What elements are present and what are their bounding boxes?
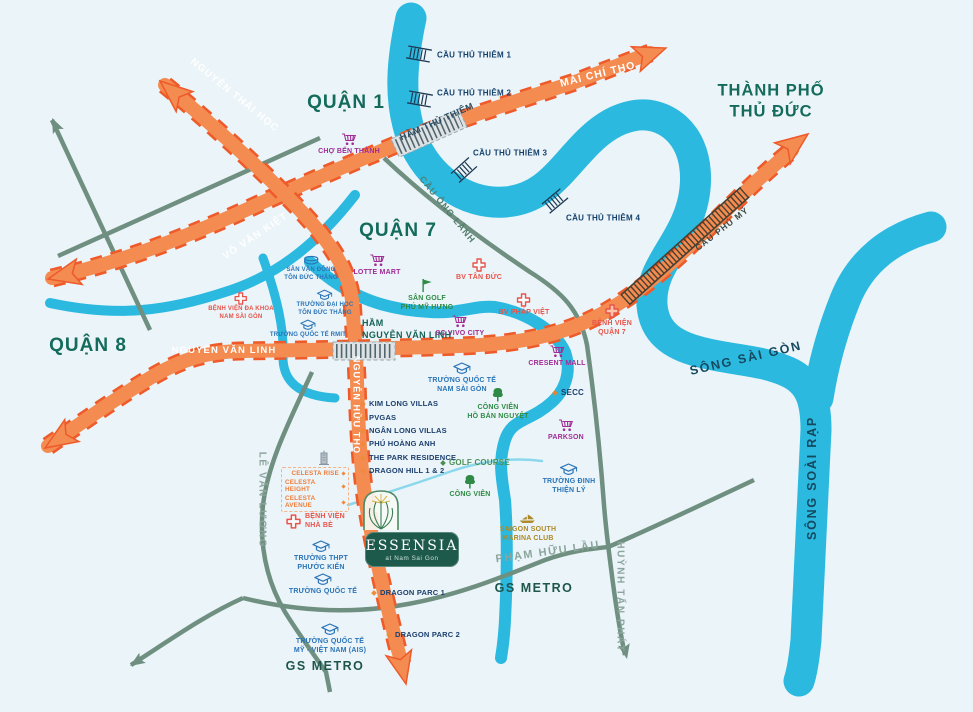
poi-label: SAIGON SOUTH MARINA CLUB <box>500 525 556 543</box>
essensia-location-map: QUẬN 1 QUẬN 7 QUẬN 8 THÀNH PHỐ THỦ ĐỨC G… <box>0 0 973 712</box>
district-quan-8: QUẬN 8 <box>49 334 127 358</box>
poi-cresent-mall: CRESENT MALL <box>528 344 585 368</box>
villa-item-kim-long: KIM LONG VILLAS <box>361 399 438 408</box>
poi-bv-phap-viet: BV PHÁP VIỆT <box>499 293 550 317</box>
road-southwest-spur <box>131 598 243 665</box>
poi-label: TRƯỜNG ĐẠI HỌC TÔN ĐỨC THẮNG <box>297 302 354 318</box>
bridge-label-thu-thiem-1: CẦU THỦ THIÊM 1 <box>437 51 511 60</box>
diamond-bullet <box>360 441 366 447</box>
medical-cross-icon <box>286 514 301 529</box>
diamond-bullet <box>552 390 558 396</box>
tree-icon <box>464 474 477 489</box>
cart-icon <box>452 314 468 328</box>
poi-truong-quoc-te: TRƯỜNG QUỐC TẾ <box>289 573 357 596</box>
poi-label: SÂN GOLF PHÚ MỸ HƯNG <box>401 294 454 312</box>
tree-icon <box>491 387 504 402</box>
golf-flag-icon <box>421 278 433 293</box>
bridge-label-thu-thiem-2: CẦU THỦ THIÊM 2 <box>437 89 511 98</box>
poi-label: TRƯỜNG QUỐC TẾ <box>289 587 357 596</box>
essensia-logo-name: ESSENSIA <box>366 538 459 554</box>
river-label-soai-rap: SÔNG SOÀI RẠP <box>805 416 821 540</box>
poi-label: DRAGON PARC 2 <box>395 630 460 639</box>
road-label-huynh-tan-phat: HUỲNH TẤN PHÁT <box>613 541 626 652</box>
poi-label: PARKSON <box>548 433 584 442</box>
poi-label: DRAGON PARC 1 <box>380 588 445 597</box>
poi-label: SÂN VẬN ĐỘNG TÔN ĐỨC THẮNG <box>284 267 338 283</box>
poi-label: BỆNH VIỆN NHÀ BÈ <box>305 512 345 530</box>
villa-item-ngan-long: NGÂN LONG VILLAS <box>361 426 447 435</box>
poi-label: CHỢ BẾN THÀNH <box>318 147 380 156</box>
poi-truong-thpt-phuoc-kien: TRƯỜNG THPT PHƯỚC KIỂN <box>294 540 348 572</box>
poi-saigon-south-marina-club: SAIGON SOUTH MARINA CLUB <box>500 514 556 543</box>
villa-item-park-residence: THE PARK RESIDENCE <box>361 453 456 462</box>
celesta-item-avenue: CELESTA AVENUE <box>285 495 345 509</box>
graduation-cap-icon <box>314 573 332 586</box>
poi-lotte-mart: LOTTE MART <box>353 253 400 277</box>
poi-label: TRƯỜNG THPT PHƯỚC KIỂN <box>294 554 348 572</box>
cart-icon <box>549 344 565 358</box>
poi-dragon-parc-2: DRAGON PARC 2 <box>387 630 460 639</box>
poi-san-van-dong-ton-duc-thang: SÂN VẬN ĐỘNG TÔN ĐỨC THẮNG <box>284 255 338 283</box>
villa-label: NGÂN LONG VILLAS <box>369 426 447 435</box>
road-northwest-diagonal <box>52 120 150 330</box>
graduation-cap-icon <box>300 319 316 331</box>
poi-label: CÔNG VIÊN HỒ BÁN NGUYỆT <box>467 403 528 421</box>
district-quan-7: QUẬN 7 <box>359 219 437 243</box>
cart-icon <box>341 132 357 146</box>
soai-rap-branch <box>818 227 931 398</box>
poi-truong-dh-ton-duc-thang: TRƯỜNG ĐẠI HỌC TÔN ĐỨC THẮNG <box>297 289 354 318</box>
diamond-bullet <box>360 415 366 421</box>
road-label-nguyen-van-linh: NGUYỄN VĂN LINH <box>172 345 277 357</box>
poi-label: CÔNG VIÊN <box>449 490 490 499</box>
diamond-bullet <box>341 484 345 488</box>
celesta-item-rise: CELESTA RISE <box>285 470 345 477</box>
poi-label: LOTTE MART <box>353 268 400 277</box>
graduation-cap-icon <box>453 362 471 375</box>
poi-label: GOLF COURSE <box>449 458 510 467</box>
cart-icon <box>369 253 385 267</box>
poi-benh-vien-quan-7: BỆNH VIỆN QUẬN 7 <box>592 304 632 337</box>
graduation-cap-icon <box>317 289 333 301</box>
diamond-bullet <box>341 471 345 475</box>
diamond-bullet <box>386 632 392 638</box>
stadium-icon <box>303 255 319 266</box>
medical-cross-icon <box>517 293 531 307</box>
poi-secc: SECC <box>553 388 584 397</box>
poi-san-golf-phu-my-hung: SÂN GOLF PHÚ MỸ HƯNG <box>401 278 454 312</box>
poi-sc-vivo-city: SC VIVO CITY <box>436 314 485 338</box>
poi-truong-dinh-thien-ly: TRƯỜNG ĐINH THIỆN LÝ <box>543 463 596 495</box>
essensia-emblem-icon <box>364 491 398 530</box>
poi-label: BỆNH VIỆN ĐA KHOA NAM SÀI GÒN <box>208 306 274 322</box>
poi-label: SECC <box>561 388 584 397</box>
celesta-group: CELESTA RISE CELESTA HEIGHT CELESTA AVEN… <box>281 467 349 512</box>
villa-label: PVGAS <box>369 413 396 422</box>
villa-label: DRAGON HILL 1 & 2 <box>369 466 444 475</box>
poi-label: CRESENT MALL <box>528 359 585 368</box>
poi-truong-qt-my-viet-nam: TRƯỜNG QUỐC TẾ MỸ - VIỆT NAM (AIS) <box>294 623 366 655</box>
poi-label: SC VIVO CITY <box>436 329 485 338</box>
diamond-bullet <box>360 455 366 461</box>
bridge-label-thu-thiem-3: CẦU THỦ THIÊM 3 <box>473 149 547 158</box>
celesta-label: CELESTA RISE <box>291 470 339 477</box>
graduation-cap-icon <box>321 623 339 636</box>
road-label-nguyen-huu-tho: NGUYỄN HỮU THỌ <box>350 356 361 454</box>
diamond-bullet <box>360 428 366 434</box>
graduation-cap-icon <box>312 540 330 553</box>
medical-cross-icon <box>605 304 619 318</box>
medical-cross-icon <box>234 292 247 305</box>
poi-cong-vien-ho-ban-nguyet: CÔNG VIÊN HỒ BÁN NGUYỆT <box>467 387 528 421</box>
poi-bv-da-khoa-nam-sai-gon: BỆNH VIỆN ĐA KHOA NAM SÀI GÒN <box>208 292 274 322</box>
poi-label: TRƯỜNG QUỐC TẾ MỸ - VIỆT NAM (AIS) <box>294 637 366 655</box>
poi-label: BV PHÁP VIỆT <box>499 308 550 317</box>
diamond-bullet <box>360 468 366 474</box>
villa-label: PHÚ HOÀNG ANH <box>369 439 436 448</box>
cart-icon <box>558 418 574 432</box>
celesta-label: CELESTA AVENUE <box>285 495 339 509</box>
diamond-bullet <box>360 401 366 407</box>
yacht-icon <box>518 514 538 524</box>
poi-cho-ben-thanh: CHỢ BẾN THÀNH <box>318 132 380 156</box>
poi-parkson: PARKSON <box>548 418 584 442</box>
celesta-item-height: CELESTA HEIGHT <box>285 479 345 493</box>
map-canvas <box>0 0 973 712</box>
diamond-bullet <box>371 590 377 596</box>
villa-item-phu-hoang-anh: PHÚ HOÀNG ANH <box>361 439 436 448</box>
poi-benh-vien-nha-be: BỆNH VIỆN NHÀ BÈ <box>286 512 345 530</box>
building-icon <box>318 450 330 467</box>
poi-label: TRƯỜNG QUỐC TẾ RMIT <box>270 332 346 340</box>
graduation-cap-icon <box>560 463 578 476</box>
bridge-label-thu-thiem-4: CẦU THỦ THIÊM 4 <box>566 214 640 223</box>
poi-label: TRƯỜNG ĐINH THIỆN LÝ <box>543 477 596 495</box>
poi-label: BỆNH VIỆN QUẬN 7 <box>592 319 632 337</box>
district-quan-1: QUẬN 1 <box>307 91 385 115</box>
medical-cross-icon <box>472 258 486 272</box>
gs-metro-label-west: GS METRO <box>286 659 365 675</box>
villa-label: THE PARK RESIDENCE <box>369 453 456 462</box>
essensia-logo-tagline: at Nam Sai Gon <box>385 555 438 562</box>
district-thu-duc: THÀNH PHỐ THỦ ĐỨC <box>717 80 824 121</box>
diamond-bullet <box>341 500 345 504</box>
villa-label: KIM LONG VILLAS <box>369 399 438 408</box>
road-label-le-van-luong: LÊ VĂN LƯƠNG <box>255 452 268 549</box>
poi-dragon-parc-1: DRAGON PARC 1 <box>372 588 445 597</box>
poi-cong-vien: CÔNG VIÊN <box>449 474 490 499</box>
gs-metro-label-east: GS METRO <box>495 581 574 597</box>
poi-label: BV TÂN ĐỨC <box>456 273 502 282</box>
tunnel-ham-nguyen-van-linh <box>333 342 395 360</box>
poi-truong-qt-rmit: TRƯỜNG QUỐC TẾ RMIT <box>270 319 346 340</box>
essensia-logo: ESSENSIA at Nam Sai Gon <box>365 532 459 567</box>
villa-item-pvgas: PVGAS <box>361 413 396 422</box>
poi-bv-tan-duc: BV TÂN ĐỨC <box>456 258 502 282</box>
celesta-label: CELESTA HEIGHT <box>285 479 339 493</box>
villa-item-dragon-hill: DRAGON HILL 1 & 2 <box>361 466 444 475</box>
